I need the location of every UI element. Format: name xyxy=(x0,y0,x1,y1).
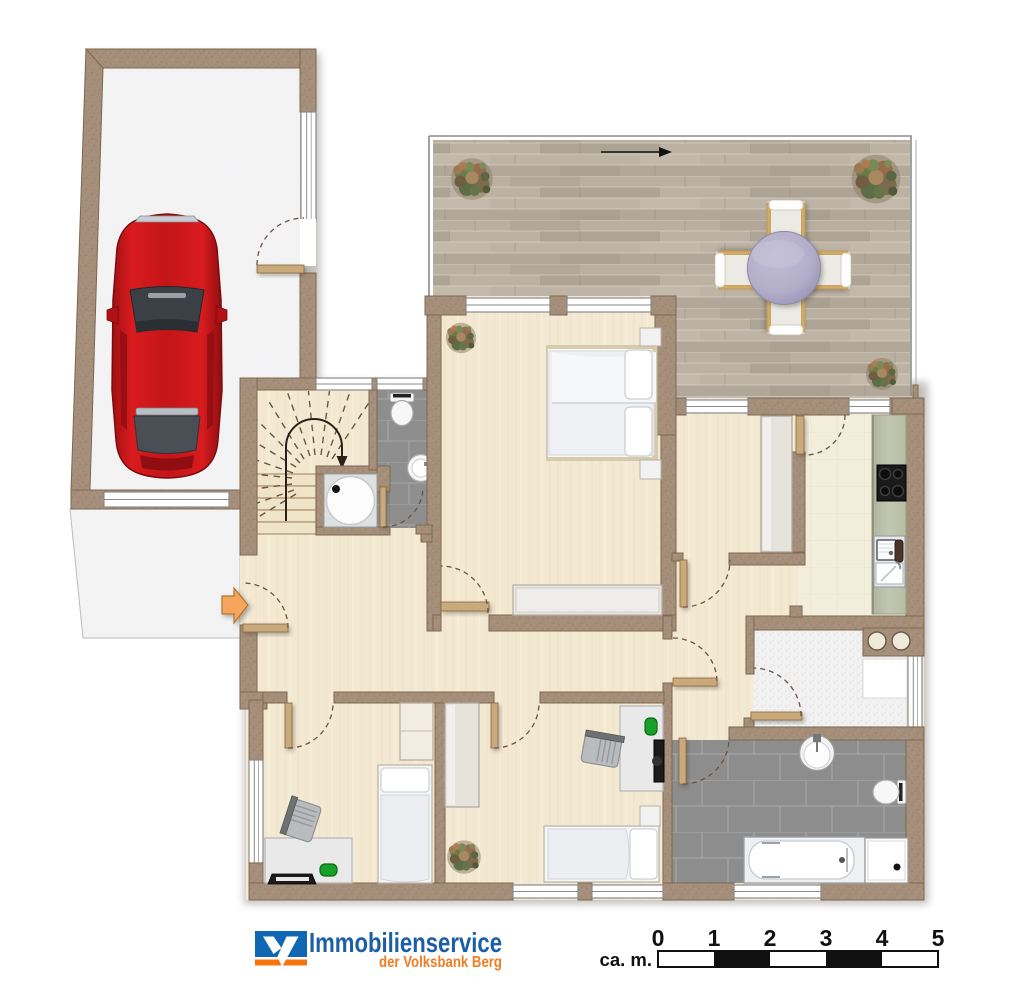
svg-text:2: 2 xyxy=(764,925,777,951)
svg-text:ca. m.: ca. m. xyxy=(600,949,652,970)
svg-text:1: 1 xyxy=(708,925,721,951)
svg-text:4: 4 xyxy=(876,925,889,951)
svg-text:3: 3 xyxy=(820,925,833,951)
svg-text:der Volksbank Berg: der Volksbank Berg xyxy=(379,954,502,971)
svg-text:0: 0 xyxy=(652,925,665,951)
svg-text:5: 5 xyxy=(932,925,945,951)
